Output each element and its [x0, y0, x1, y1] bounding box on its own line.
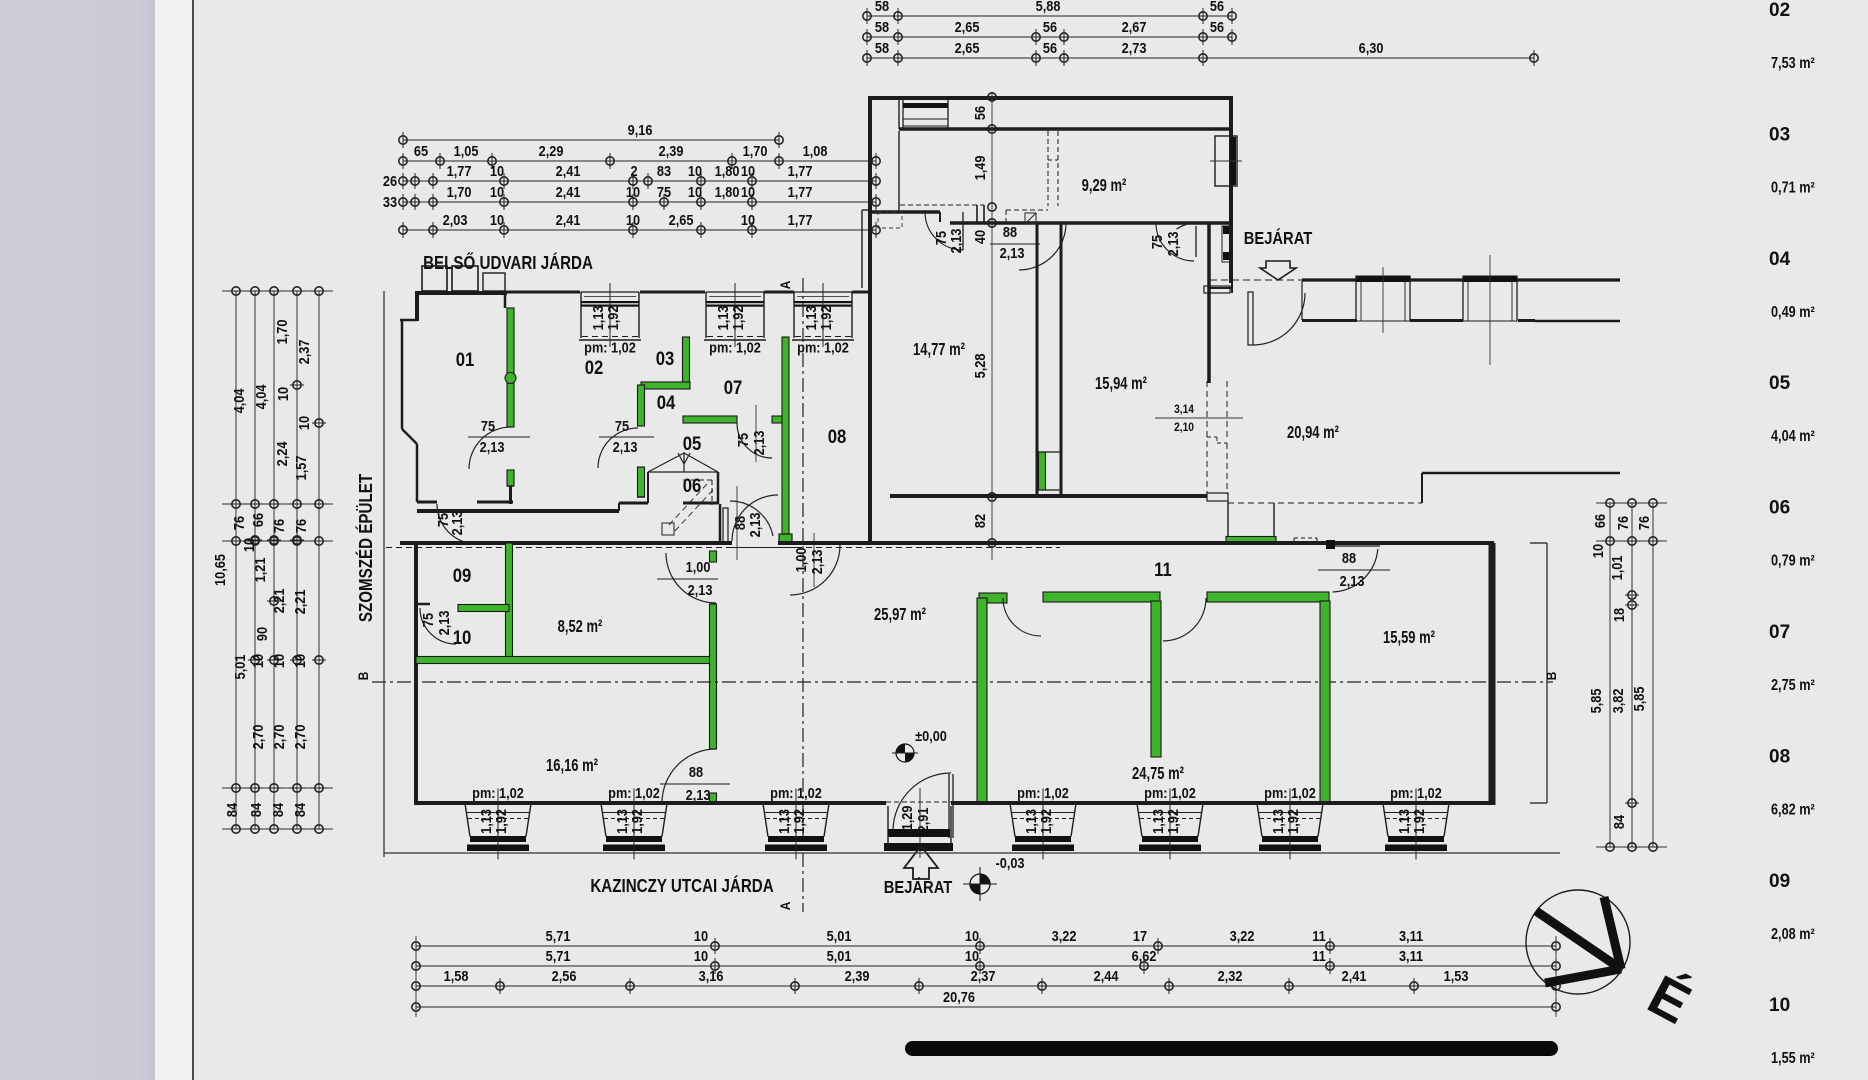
svg-text:58: 58	[875, 18, 889, 35]
svg-text:10: 10	[274, 387, 291, 401]
svg-text:2,13: 2,13	[1000, 244, 1025, 261]
svg-text:2,67: 2,67	[1122, 18, 1147, 35]
svg-text:56: 56	[1043, 39, 1057, 56]
svg-text:B: B	[1543, 672, 1559, 681]
svg-text:3,82: 3,82	[1609, 688, 1626, 713]
svg-text:18: 18	[1610, 608, 1627, 622]
svg-text:10: 10	[694, 947, 708, 964]
svg-text:10: 10	[291, 654, 308, 668]
svg-text:2,37: 2,37	[295, 339, 312, 364]
svg-text:3,14: 3,14	[1174, 403, 1195, 416]
svg-text:56: 56	[1210, 0, 1224, 14]
svg-text:1,70: 1,70	[743, 142, 768, 159]
svg-text:17: 17	[1133, 927, 1147, 944]
svg-text:10: 10	[626, 211, 640, 228]
svg-text:10: 10	[694, 927, 708, 944]
svg-text:2,13: 2,13	[746, 512, 763, 537]
svg-text:2,70: 2,70	[249, 724, 266, 749]
svg-text:03: 03	[656, 348, 675, 369]
svg-text:10: 10	[240, 538, 257, 552]
svg-text:58: 58	[875, 0, 889, 14]
svg-text:1,21: 1,21	[251, 557, 268, 582]
svg-text:65: 65	[414, 142, 428, 159]
svg-text:5,88: 5,88	[1036, 0, 1061, 14]
svg-text:1,00: 1,00	[686, 558, 711, 575]
svg-text:±0,00: ±0,00	[915, 727, 947, 744]
svg-text:pm: 1,02: pm: 1,02	[1144, 784, 1196, 801]
svg-text:10: 10	[295, 416, 312, 430]
svg-text:10,65: 10,65	[211, 554, 228, 586]
svg-text:08: 08	[828, 426, 847, 447]
svg-text:10: 10	[249, 654, 266, 668]
svg-text:83: 83	[657, 162, 671, 179]
svg-text:75: 75	[481, 417, 495, 434]
svg-text:1,92: 1,92	[1410, 809, 1427, 834]
svg-text:-0,03: -0,03	[995, 854, 1024, 871]
svg-text:1,80: 1,80	[715, 162, 740, 179]
svg-text:84: 84	[1610, 815, 1627, 829]
svg-text:A: A	[777, 280, 793, 289]
svg-text:1,57: 1,57	[292, 455, 309, 480]
svg-text:10: 10	[965, 947, 979, 964]
svg-text:40: 40	[971, 230, 988, 244]
svg-text:pm: 1,02: pm: 1,02	[770, 784, 822, 801]
svg-text:09: 09	[453, 565, 472, 586]
svg-text:5,01: 5,01	[827, 927, 852, 944]
svg-text:03: 03	[1769, 124, 1790, 145]
svg-text:76: 76	[230, 516, 247, 530]
svg-text:KAZINCZY UTCAI JÁRDA: KAZINCZY UTCAI JÁRDA	[590, 876, 773, 897]
svg-text:05: 05	[683, 433, 702, 454]
svg-text:pm: 1,02: pm: 1,02	[1390, 784, 1442, 801]
svg-text:10: 10	[741, 183, 755, 200]
svg-text:pm: 1,02: pm: 1,02	[1017, 784, 1069, 801]
svg-text:1,58: 1,58	[444, 967, 469, 984]
svg-text:2,29: 2,29	[539, 142, 564, 159]
svg-text:2,44: 2,44	[1094, 967, 1119, 984]
svg-text:0,79 m²: 0,79 m²	[1771, 551, 1815, 568]
svg-text:pm: 1,02: pm: 1,02	[472, 784, 524, 801]
svg-text:1,92: 1,92	[1037, 809, 1054, 834]
svg-text:2,65: 2,65	[669, 211, 694, 228]
svg-text:2,13: 2,13	[808, 549, 825, 574]
svg-text:2,13: 2,13	[686, 786, 711, 803]
svg-text:BEJÁRAT: BEJÁRAT	[884, 877, 953, 898]
svg-text:2,41: 2,41	[556, 183, 581, 200]
svg-text:0,49 m²: 0,49 m²	[1771, 303, 1815, 320]
svg-text:3,22: 3,22	[1052, 927, 1077, 944]
svg-text:66: 66	[1591, 514, 1608, 528]
svg-text:84: 84	[269, 803, 286, 817]
svg-text:84: 84	[291, 803, 308, 817]
svg-text:1,92: 1,92	[628, 809, 645, 834]
svg-text:2,65: 2,65	[955, 39, 980, 56]
svg-text:2,03: 2,03	[443, 211, 468, 228]
svg-text:2,65: 2,65	[955, 18, 980, 35]
svg-text:1,77: 1,77	[788, 211, 813, 228]
svg-text:1,92: 1,92	[817, 305, 834, 330]
svg-text:2,70: 2,70	[291, 724, 308, 749]
svg-text:76: 76	[292, 519, 309, 533]
svg-text:1,92: 1,92	[1284, 809, 1301, 834]
svg-text:2,13: 2,13	[480, 438, 505, 455]
svg-text:75: 75	[615, 417, 629, 434]
svg-text:14,77 m²: 14,77 m²	[913, 340, 965, 359]
svg-text:5,01: 5,01	[827, 947, 852, 964]
svg-text:10: 10	[490, 211, 504, 228]
svg-text:20,94 m²: 20,94 m²	[1287, 423, 1339, 442]
svg-text:pm: 1,02: pm: 1,02	[709, 338, 761, 355]
svg-text:75: 75	[734, 433, 751, 447]
svg-text:BEJÁRAT: BEJÁRAT	[1244, 228, 1313, 249]
svg-text:3,16: 3,16	[699, 967, 724, 984]
svg-text:5,71: 5,71	[546, 947, 571, 964]
svg-text:1,49: 1,49	[971, 155, 988, 180]
svg-text:5,71: 5,71	[546, 927, 571, 944]
svg-text:1,00: 1,00	[792, 547, 809, 572]
svg-text:4,04: 4,04	[252, 384, 269, 409]
svg-text:10: 10	[626, 183, 640, 200]
svg-text:07: 07	[724, 377, 743, 398]
svg-text:33: 33	[383, 193, 397, 210]
svg-text:3,11: 3,11	[1399, 947, 1423, 964]
svg-text:2,21: 2,21	[270, 588, 287, 613]
svg-text:2,32: 2,32	[1218, 967, 1243, 984]
svg-text:2,08 m²: 2,08 m²	[1771, 925, 1815, 942]
svg-text:08: 08	[1769, 746, 1790, 767]
svg-text:2,73: 2,73	[1122, 39, 1147, 56]
svg-text:90: 90	[253, 627, 270, 641]
svg-text:3,22: 3,22	[1230, 927, 1255, 944]
svg-text:5,01: 5,01	[231, 654, 248, 679]
svg-text:6,82 m²: 6,82 m²	[1771, 800, 1815, 817]
svg-text:2,13: 2,13	[688, 581, 713, 598]
svg-text:SZOMSZÉD ÉPÜLET: SZOMSZÉD ÉPÜLET	[356, 473, 377, 622]
svg-text:pm: 1,02: pm: 1,02	[1264, 784, 1316, 801]
svg-text:04: 04	[657, 392, 676, 413]
svg-text:1,01: 1,01	[1608, 555, 1625, 580]
svg-text:2,13: 2,13	[1164, 231, 1181, 256]
svg-text:10: 10	[1589, 544, 1606, 558]
svg-text:88: 88	[1342, 549, 1356, 566]
svg-text:1,53: 1,53	[1444, 967, 1469, 984]
svg-text:BELSŐ UDVARI JÁRDA: BELSŐ UDVARI JÁRDA	[423, 253, 593, 274]
svg-text:1,29: 1,29	[898, 805, 915, 830]
svg-text:66: 66	[249, 513, 266, 527]
svg-text:76: 76	[270, 519, 287, 533]
svg-text:1,55 m²: 1,55 m²	[1771, 1049, 1815, 1066]
svg-text:2,41: 2,41	[556, 162, 581, 179]
svg-text:2,39: 2,39	[845, 967, 870, 984]
svg-text:1,08: 1,08	[803, 142, 828, 159]
svg-text:75: 75	[657, 183, 671, 200]
svg-text:10: 10	[1769, 995, 1790, 1016]
svg-text:4,04 m²: 4,04 m²	[1771, 427, 1815, 444]
svg-text:4,04: 4,04	[230, 388, 247, 413]
svg-text:2,21: 2,21	[291, 589, 308, 614]
svg-text:1,92: 1,92	[729, 305, 746, 330]
svg-text:2,70: 2,70	[270, 724, 287, 749]
svg-text:2,56: 2,56	[552, 967, 577, 984]
svg-text:2,13: 2,13	[1340, 572, 1365, 589]
svg-text:04: 04	[1769, 249, 1791, 270]
svg-text:20,76: 20,76	[943, 988, 975, 1005]
svg-text:02: 02	[585, 357, 604, 378]
svg-text:2,75 m²: 2,75 m²	[1771, 676, 1815, 693]
svg-text:10: 10	[688, 162, 702, 179]
svg-text:09: 09	[1769, 871, 1790, 892]
svg-text:1,92: 1,92	[1164, 809, 1181, 834]
svg-text:7,53 m²: 7,53 m²	[1771, 54, 1815, 71]
svg-text:75: 75	[1148, 235, 1165, 249]
svg-text:2,13: 2,13	[435, 610, 452, 635]
svg-text:2,91: 2,91	[914, 807, 931, 832]
svg-text:2,13: 2,13	[750, 430, 767, 455]
svg-text:1,80: 1,80	[715, 183, 740, 200]
svg-text:11: 11	[1312, 927, 1326, 944]
svg-text:1,92: 1,92	[790, 809, 807, 834]
svg-text:9,16: 9,16	[628, 121, 653, 138]
svg-text:02: 02	[1769, 0, 1790, 21]
svg-text:56: 56	[1043, 18, 1057, 35]
svg-text:B: B	[355, 672, 371, 681]
svg-text:1,70: 1,70	[273, 319, 290, 344]
svg-text:2,24: 2,24	[273, 441, 290, 466]
svg-text:07: 07	[1769, 622, 1790, 643]
svg-text:2,13: 2,13	[947, 228, 964, 253]
svg-text:9,29 m²: 9,29 m²	[1082, 176, 1127, 195]
svg-text:10: 10	[688, 183, 702, 200]
svg-text:25,97 m²: 25,97 m²	[874, 605, 926, 624]
svg-text:pm: 1,02: pm: 1,02	[797, 338, 849, 355]
svg-text:76: 76	[1635, 516, 1652, 530]
svg-text:10: 10	[741, 211, 755, 228]
svg-text:2,10: 2,10	[1174, 421, 1194, 434]
svg-text:56: 56	[971, 106, 988, 120]
svg-text:76: 76	[1614, 516, 1631, 530]
svg-text:11: 11	[1312, 947, 1326, 964]
svg-text:6,62: 6,62	[1132, 947, 1157, 964]
svg-text:2,39: 2,39	[659, 142, 684, 159]
svg-text:75: 75	[419, 613, 436, 627]
svg-text:1,05: 1,05	[454, 142, 479, 159]
svg-text:56: 56	[1210, 18, 1224, 35]
svg-text:01: 01	[456, 349, 475, 370]
svg-text:pm: 1,02: pm: 1,02	[584, 338, 636, 355]
svg-text:58: 58	[875, 39, 889, 56]
svg-text:2,41: 2,41	[1342, 967, 1367, 984]
svg-text:5,85: 5,85	[1587, 688, 1604, 713]
svg-text:10: 10	[270, 654, 287, 668]
svg-text:1,77: 1,77	[788, 183, 813, 200]
svg-text:10: 10	[741, 162, 755, 179]
svg-text:1,92: 1,92	[492, 809, 509, 834]
svg-text:84: 84	[223, 803, 240, 817]
svg-text:3,11: 3,11	[1399, 927, 1423, 944]
svg-text:06: 06	[1769, 498, 1790, 519]
svg-text:1,77: 1,77	[788, 162, 813, 179]
svg-text:pm: 1,02: pm: 1,02	[608, 784, 660, 801]
svg-text:11: 11	[1154, 559, 1172, 580]
svg-text:0,71 m²: 0,71 m²	[1771, 178, 1815, 195]
svg-text:10: 10	[490, 183, 504, 200]
svg-text:10: 10	[965, 927, 979, 944]
svg-text:84: 84	[247, 803, 264, 817]
svg-text:10: 10	[490, 162, 504, 179]
svg-text:1,92: 1,92	[604, 305, 621, 330]
svg-text:2,13: 2,13	[448, 510, 465, 535]
svg-text:6,30: 6,30	[1359, 39, 1384, 56]
svg-text:2,37: 2,37	[971, 967, 996, 984]
svg-text:88: 88	[1003, 223, 1017, 240]
svg-text:05: 05	[1769, 373, 1791, 394]
svg-text:1,70: 1,70	[447, 183, 472, 200]
svg-text:2,13: 2,13	[613, 438, 638, 455]
svg-text:24,75 m²: 24,75 m²	[1132, 764, 1184, 783]
svg-text:1,77: 1,77	[447, 162, 472, 179]
svg-text:15,59 m²: 15,59 m²	[1383, 628, 1435, 647]
svg-text:16,16 m²: 16,16 m²	[546, 756, 598, 775]
svg-text:10: 10	[453, 627, 472, 648]
svg-text:5,28: 5,28	[971, 353, 988, 378]
svg-text:5,85: 5,85	[1630, 686, 1647, 711]
svg-text:88: 88	[689, 763, 703, 780]
svg-text:15,94 m²: 15,94 m²	[1095, 374, 1147, 393]
svg-text:2: 2	[630, 162, 637, 179]
svg-text:A: A	[777, 901, 793, 910]
svg-text:8,52 m²: 8,52 m²	[558, 617, 603, 636]
svg-text:26: 26	[383, 172, 397, 189]
svg-text:2,41: 2,41	[556, 211, 581, 228]
svg-text:82: 82	[971, 514, 988, 528]
